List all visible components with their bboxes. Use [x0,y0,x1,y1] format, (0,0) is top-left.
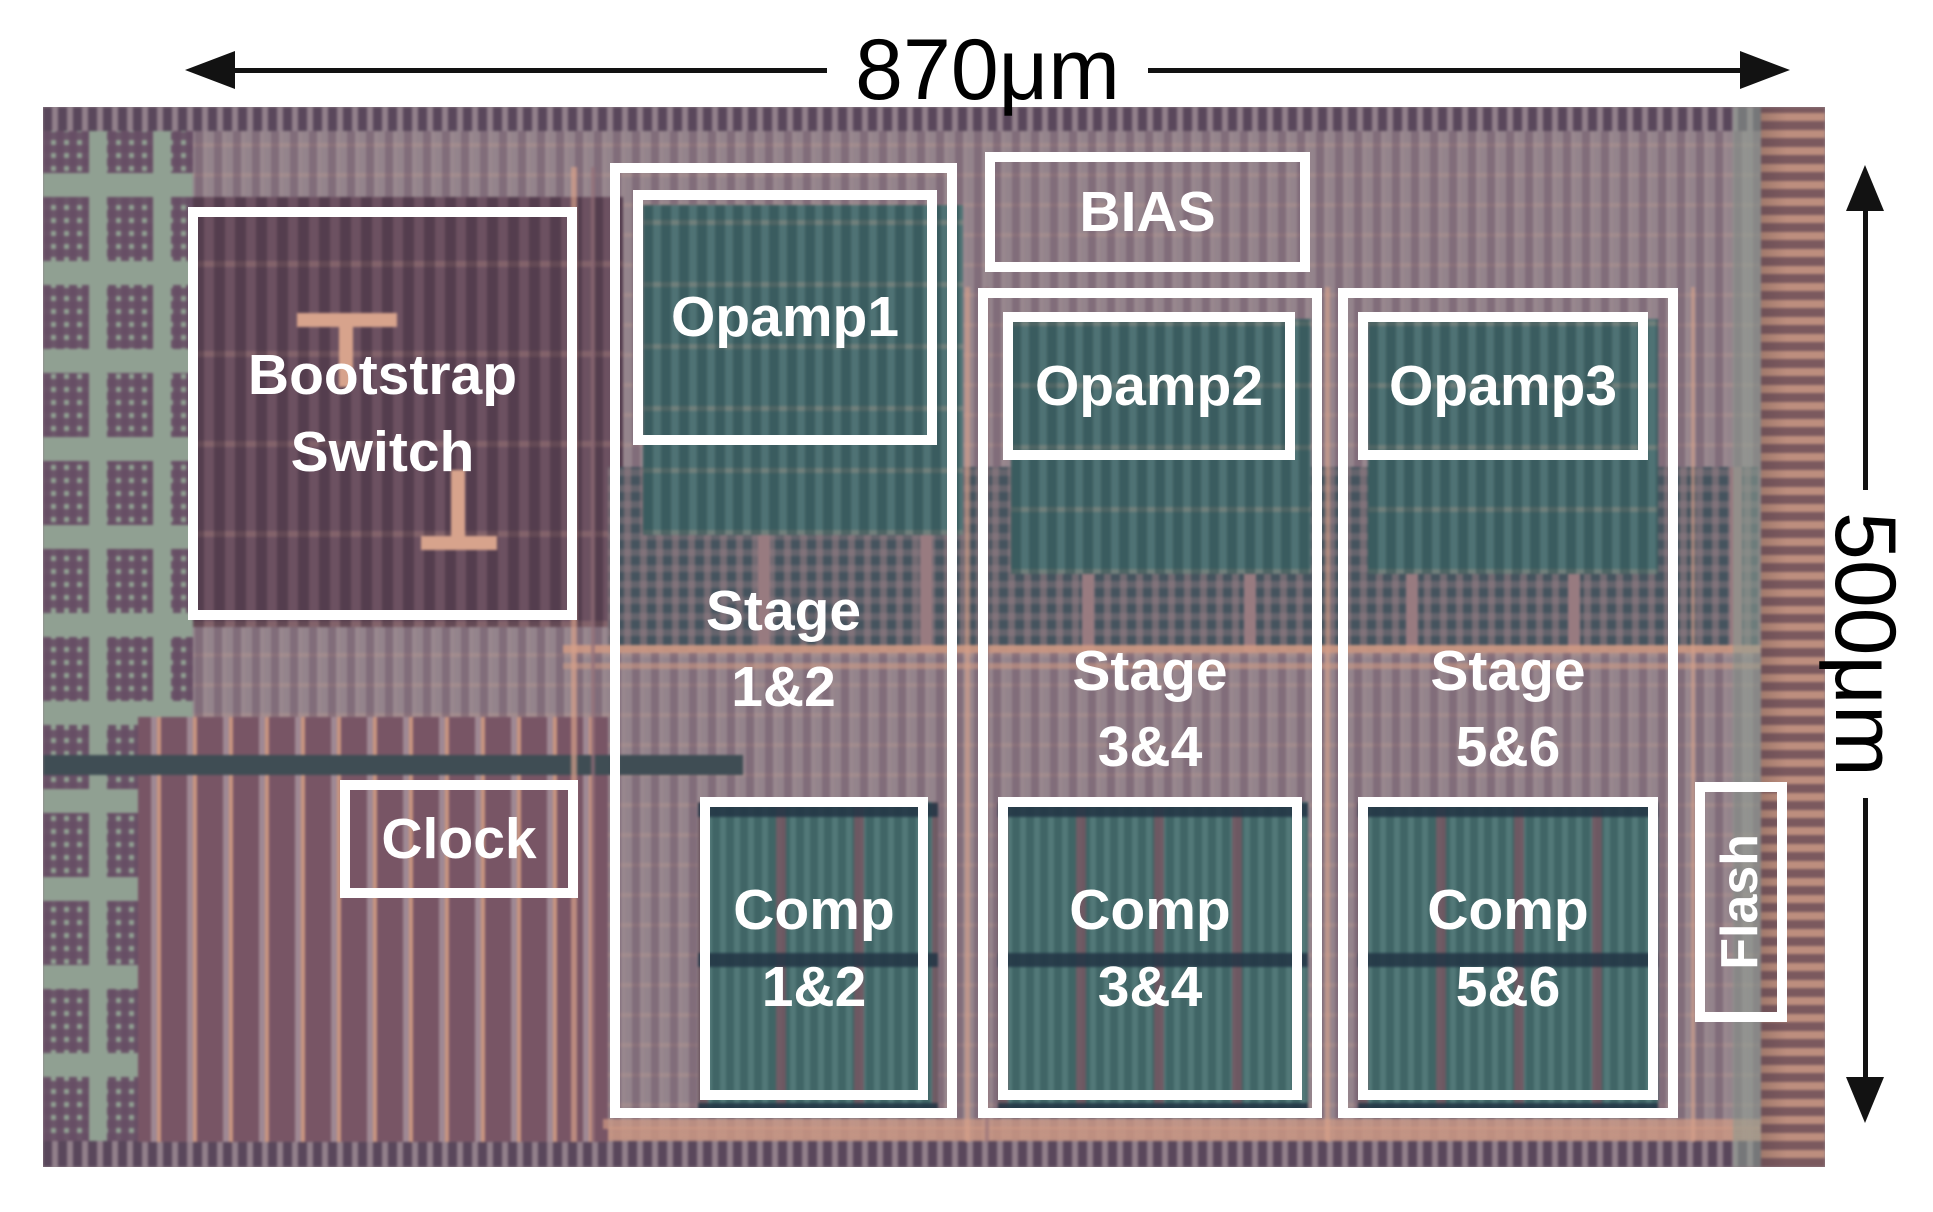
region-box-clock: Clock [340,780,578,898]
right-dimension-label: 500μm [1822,490,1908,799]
region-box-comp-5-6: Comp 5&6 [1358,797,1658,1100]
die-micrograph-figure: 870μm 500μm [0,0,1933,1212]
region-label-stage-1-2: Stage 1&2 [610,573,957,726]
region-box-bias: BIAS [985,152,1310,272]
region-box-opamp2: Opamp2 [1003,312,1295,460]
dimension-line [235,68,827,73]
region-label-comp-1-2: Comp 1&2 [733,872,894,1025]
arrow-left-icon [185,51,235,89]
arrow-right-icon [1740,51,1790,89]
region-label-bias: BIAS [1079,174,1215,250]
right-dimension: 500μm [1820,165,1910,1123]
die-photo: Bootstrap Switch Opamp1 Stage 1&2 Comp 1… [43,107,1825,1167]
arrow-up-icon [1846,165,1884,211]
dimension-line [1148,68,1740,73]
region-label-stage-5-6: Stage 5&6 [1338,633,1678,786]
dimension-line [1863,211,1868,490]
region-box-bootstrap-switch: Bootstrap Switch [188,207,577,620]
region-label-opamp2: Opamp2 [1035,348,1263,424]
region-label-comp-3-4: Comp 3&4 [1069,872,1230,1025]
region-label-opamp3: Opamp3 [1389,348,1617,424]
region-box-opamp3: Opamp3 [1358,312,1648,460]
region-box-opamp1: Opamp1 [633,190,937,445]
region-label-opamp1: Opamp1 [671,279,899,355]
region-box-flash: Flash [1695,782,1787,1022]
region-box-comp-3-4: Comp 3&4 [998,797,1302,1100]
top-dimension: 870μm [185,38,1790,102]
region-label-bootstrap-switch: Bootstrap Switch [248,337,517,490]
region-label-clock: Clock [381,801,536,877]
region-label-comp-5-6: Comp 5&6 [1427,872,1588,1025]
region-label-flash: Flash [1706,834,1776,970]
region-box-comp-1-2: Comp 1&2 [700,797,928,1100]
top-dimension-label: 870μm [827,27,1148,113]
region-label-stage-3-4: Stage 3&4 [978,633,1322,786]
arrow-down-icon [1846,1077,1884,1123]
dimension-line [1863,798,1868,1077]
